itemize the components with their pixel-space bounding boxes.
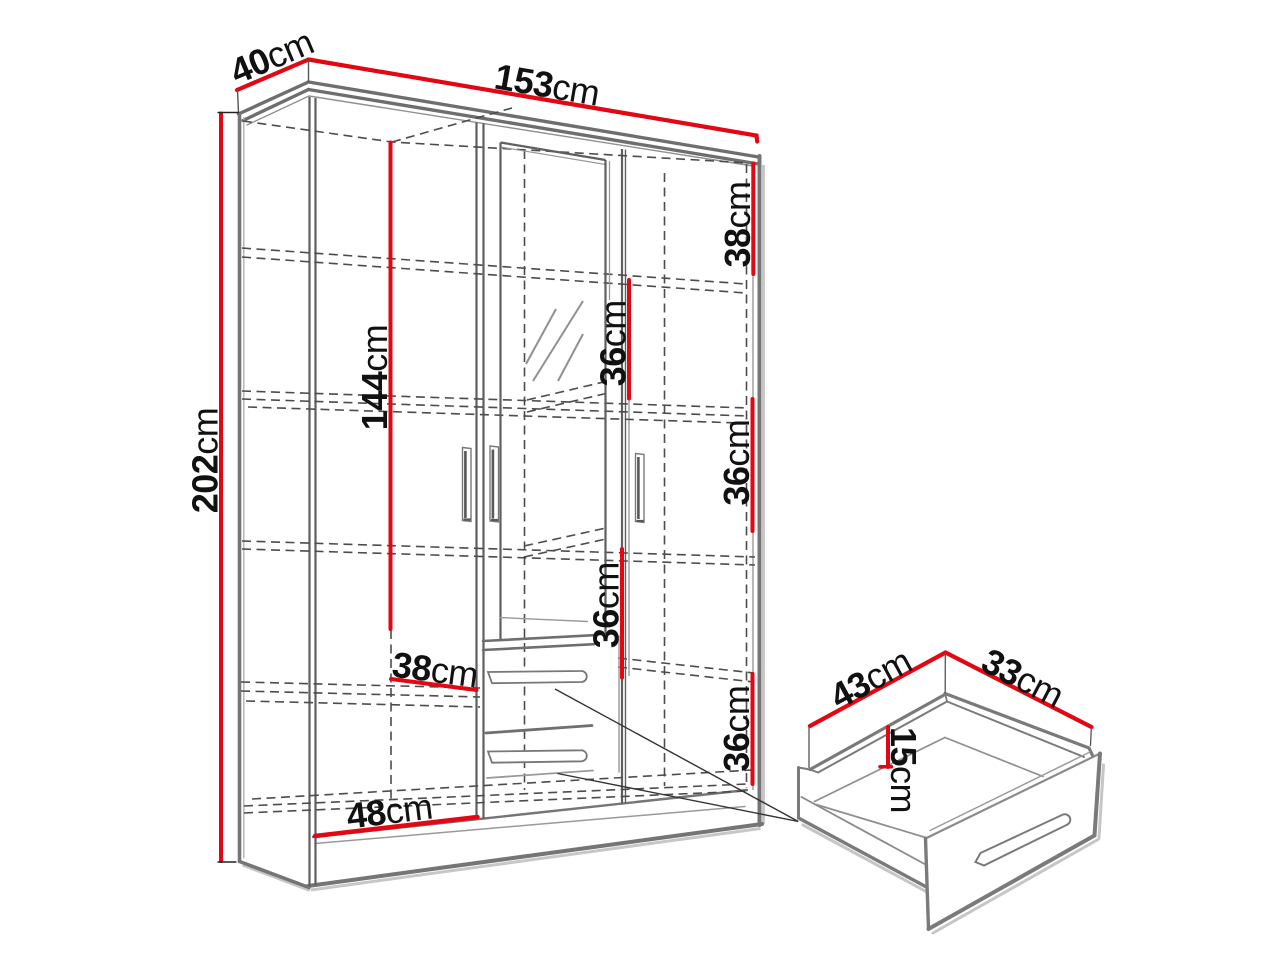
svg-text:144cm: 144cm [354,325,395,431]
svg-text:36cm: 36cm [716,686,757,772]
svg-text:36cm: 36cm [586,562,627,648]
svg-text:36cm: 36cm [716,420,757,506]
svg-text:38cm: 38cm [717,181,758,267]
svg-text:36cm: 36cm [593,300,634,386]
svg-text:202cm: 202cm [185,408,226,514]
svg-text:15cm: 15cm [883,727,924,813]
